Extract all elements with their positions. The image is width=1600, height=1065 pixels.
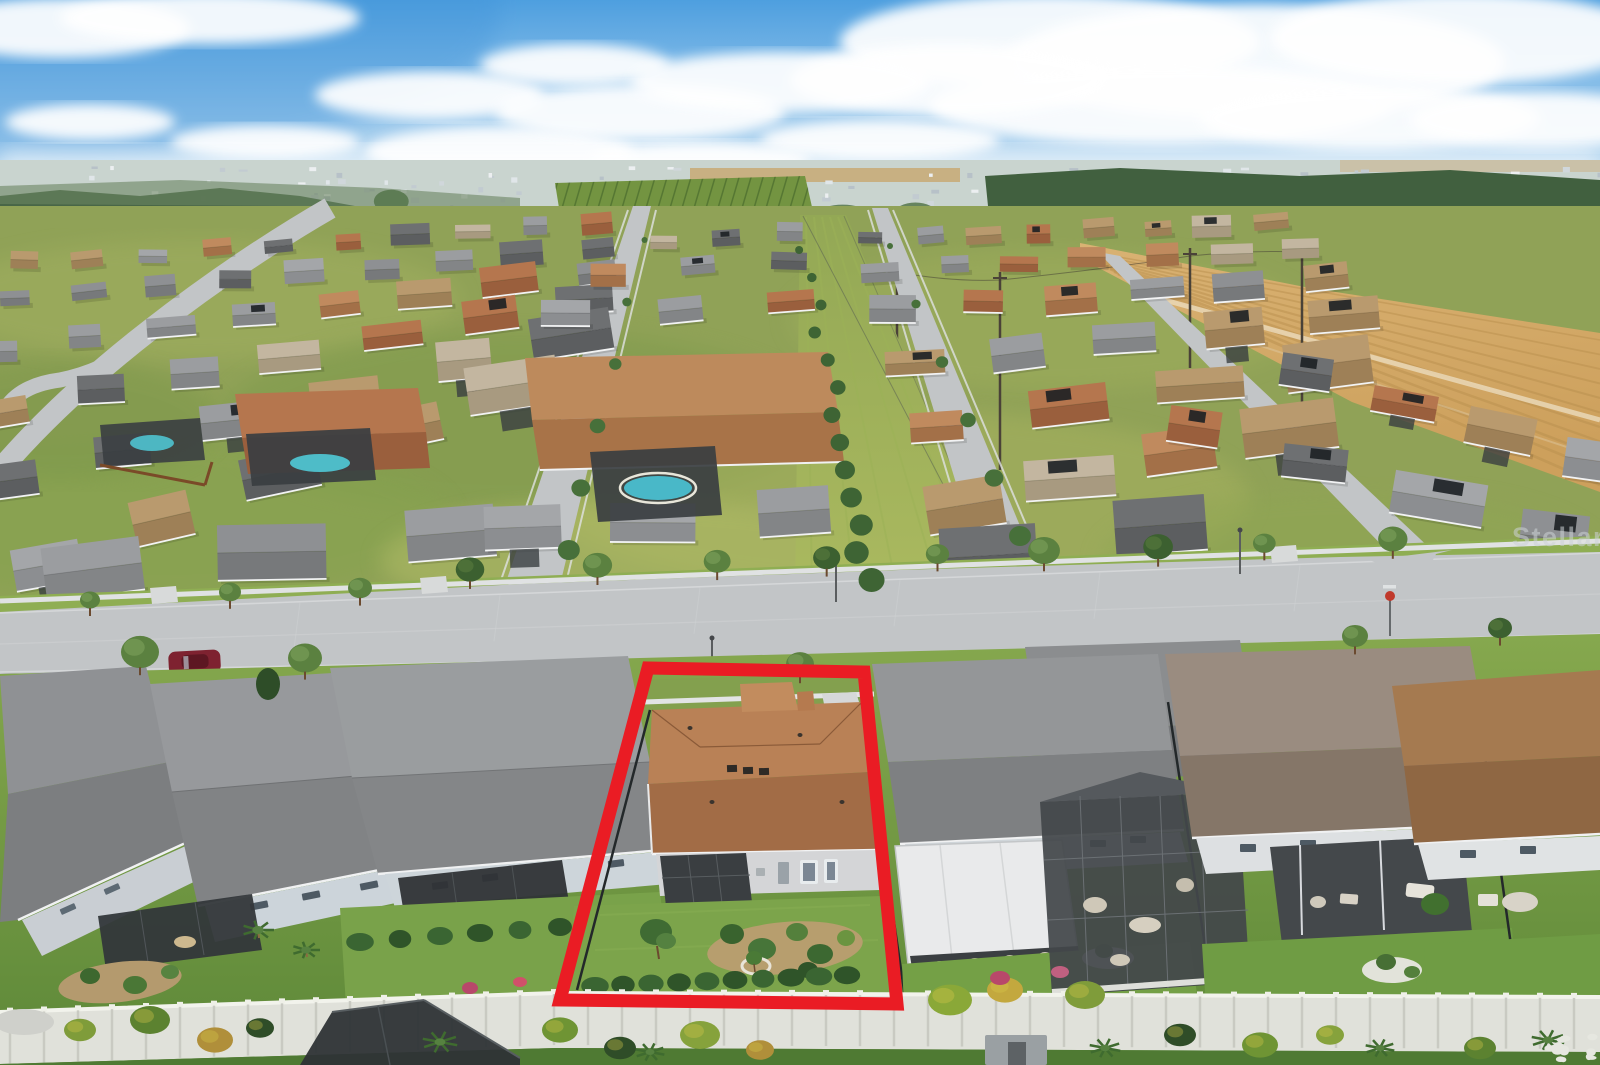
- wall-post-cap: [1469, 993, 1475, 998]
- solar-panel: [720, 231, 729, 236]
- distant-house-speck: [298, 182, 305, 184]
- stop-sign: [1385, 591, 1395, 601]
- wall-post-cap: [687, 990, 693, 995]
- wall-post-cap: [1367, 992, 1373, 997]
- belt-tree: [840, 488, 862, 508]
- hedge: [834, 966, 860, 984]
- blob: [840, 800, 845, 804]
- patio-furniture: [1083, 897, 1107, 913]
- blob: [887, 243, 893, 249]
- blob: [936, 356, 948, 368]
- rect: [0, 351, 17, 362]
- solar-panel: [913, 352, 932, 360]
- street-tree-small: [571, 479, 590, 496]
- screen-enclosure: [510, 549, 540, 568]
- wall-post-cap: [347, 996, 353, 1001]
- blob: [985, 469, 1004, 486]
- distant-house-speck: [239, 170, 248, 172]
- midground-house: [170, 356, 223, 392]
- blob: [249, 1020, 263, 1030]
- wall-post-cap: [1333, 992, 1339, 997]
- rect: [1146, 254, 1179, 267]
- blob: [82, 593, 93, 602]
- midground-house: [580, 211, 616, 239]
- wall-post-cap: [1129, 991, 1135, 996]
- wall-post-cap: [41, 1006, 47, 1011]
- midground-house: [1307, 295, 1383, 337]
- rect: [1211, 253, 1253, 264]
- hedge: [752, 970, 775, 988]
- subject-lanai: [660, 853, 752, 906]
- blob: [798, 733, 803, 737]
- pool: [130, 435, 174, 451]
- hedge: [467, 924, 493, 942]
- white-rock: [1587, 1056, 1596, 1060]
- aerial-photo-canvas: StellarMLS: [0, 0, 1600, 1065]
- street-tree-small: [590, 419, 606, 433]
- midground-house: [0, 290, 33, 309]
- blob: [458, 559, 474, 572]
- blob: [462, 982, 478, 994]
- wall-post-cap: [1027, 991, 1033, 996]
- midground-house: [581, 237, 618, 263]
- midground-house: [757, 485, 835, 541]
- line: [523, 225, 547, 226]
- distant-house-speck: [220, 168, 225, 172]
- rect: [138, 256, 167, 263]
- midground-house: [1192, 215, 1235, 241]
- midground-house: [771, 252, 810, 273]
- blob: [1069, 984, 1089, 998]
- blob: [301, 947, 311, 954]
- distant-house-speck: [913, 194, 920, 199]
- blob: [746, 951, 762, 965]
- midground-house: [965, 226, 1005, 248]
- blob: [252, 926, 263, 934]
- wall-post-cap: [789, 990, 795, 995]
- rect: [771, 260, 807, 270]
- wall-post-cap: [109, 1004, 115, 1009]
- midground-house: [390, 223, 433, 249]
- midground-house: [917, 225, 947, 247]
- distant-house-speck: [825, 180, 832, 184]
- blob: [1176, 878, 1194, 892]
- wall-post-cap: [177, 1002, 183, 1007]
- rect: [1008, 1042, 1026, 1065]
- line: [610, 542, 695, 543]
- rect: [219, 279, 251, 288]
- pool: [290, 454, 350, 472]
- blob: [684, 1024, 704, 1038]
- rect: [1211, 243, 1253, 254]
- wall-post-cap: [313, 997, 319, 1002]
- distant-house-speck: [929, 174, 933, 177]
- hedge: [695, 972, 720, 990]
- rect: [217, 523, 326, 553]
- rect: [364, 259, 399, 270]
- wall-post-cap: [1571, 993, 1577, 998]
- midground-house: [1282, 238, 1323, 262]
- blob: [607, 1039, 623, 1050]
- blob: [221, 584, 233, 594]
- solar-panel: [1230, 310, 1250, 323]
- midground-house: [858, 232, 885, 247]
- rect: [1027, 234, 1051, 244]
- ovoid-shrub: [256, 668, 280, 700]
- sand-circle: [174, 936, 196, 948]
- tan-house-roof: [525, 352, 838, 420]
- subject-door: [778, 862, 789, 884]
- distant-house-speck: [848, 186, 854, 189]
- midground-house: [1253, 211, 1292, 233]
- midground-house: [1166, 405, 1226, 452]
- wall-post-cap: [755, 990, 761, 995]
- belt-tree: [844, 541, 869, 564]
- rect: [483, 504, 561, 529]
- midground-house: [650, 236, 680, 253]
- blob: [932, 988, 954, 1003]
- blob: [1030, 539, 1048, 553]
- blob: [1376, 954, 1396, 970]
- blob: [646, 1049, 655, 1055]
- rect: [390, 234, 430, 246]
- rect: [139, 249, 168, 256]
- blob: [656, 933, 676, 949]
- rect: [390, 223, 430, 235]
- midground-house: [767, 289, 819, 317]
- blob: [80, 968, 100, 984]
- screen-enclosure: [1225, 346, 1249, 364]
- rect: [869, 295, 916, 309]
- midground-house: [1211, 243, 1257, 268]
- belt-tree: [835, 461, 855, 480]
- wall-post-cap: [1299, 992, 1305, 997]
- street-tree-small: [622, 298, 631, 307]
- distant-house-speck: [110, 166, 114, 170]
- blob: [1490, 620, 1503, 631]
- wall-post-cap: [483, 991, 489, 996]
- midground-house: [941, 255, 972, 276]
- blob: [688, 726, 693, 730]
- midground-house: [680, 254, 719, 278]
- distant-house-speck: [411, 185, 416, 188]
- midground-house: [138, 249, 170, 266]
- rect: [1282, 248, 1319, 259]
- midground-house: [1023, 455, 1119, 505]
- distant-house-speck: [89, 176, 94, 181]
- rect: [964, 290, 1004, 302]
- blob: [134, 1009, 154, 1023]
- rect: [803, 863, 815, 881]
- pool: [624, 476, 692, 500]
- blob: [124, 639, 145, 656]
- wall-post-cap: [1197, 991, 1203, 996]
- midground-house: [1146, 242, 1182, 270]
- wall-post-cap: [245, 1000, 251, 1005]
- line: [963, 312, 1002, 313]
- house-d-roof: [872, 654, 1172, 762]
- white-rock: [1586, 1048, 1596, 1056]
- distant-house-speck: [1563, 167, 1570, 172]
- solar-panel: [1061, 286, 1078, 296]
- rect: [365, 269, 400, 280]
- garden-shrub: [786, 923, 808, 941]
- hedge: [389, 930, 412, 948]
- distant-house-speck: [931, 190, 939, 194]
- midground-house: [1281, 443, 1352, 486]
- hedge: [778, 969, 805, 987]
- wall-post-cap: [653, 989, 659, 994]
- blob: [1543, 1037, 1553, 1044]
- blob: [1310, 896, 1326, 908]
- distant-house-speck: [385, 180, 388, 185]
- street-tree-small: [642, 237, 648, 243]
- midground-house: [591, 264, 629, 290]
- blob: [1246, 1035, 1264, 1048]
- distant-house-speck: [92, 166, 98, 168]
- driveway: [420, 576, 448, 594]
- roof-vent: [759, 768, 769, 775]
- blob: [706, 552, 721, 564]
- blob: [815, 548, 830, 560]
- blob: [1404, 966, 1420, 978]
- blob: [513, 977, 527, 987]
- midground-house: [364, 259, 403, 283]
- belt-tree: [808, 327, 821, 339]
- street-name-sign: [1383, 585, 1396, 589]
- distant-house-speck: [326, 180, 330, 184]
- belt-tree: [831, 434, 850, 451]
- midground-house: [77, 374, 128, 408]
- wall-post-cap: [75, 1005, 81, 1010]
- garden-shrub: [720, 924, 744, 944]
- patio-furniture: [1502, 892, 1538, 912]
- wall-post-cap: [721, 990, 727, 995]
- belt-tree: [830, 380, 846, 395]
- aerial-photo: StellarMLS: [0, 0, 1600, 1065]
- yard-tree: [1421, 893, 1449, 915]
- house-g-roof: [1392, 670, 1600, 766]
- blob: [710, 636, 715, 641]
- subject-roof-front: [648, 702, 870, 784]
- midground-house: [869, 295, 919, 326]
- wall-post-cap: [1503, 993, 1509, 998]
- midground-house: [1155, 365, 1248, 406]
- distant-house-speck: [967, 173, 972, 178]
- rect: [523, 216, 547, 226]
- distant-tan-hill: [1340, 160, 1600, 172]
- rect: [1192, 226, 1232, 238]
- street-tree-small: [558, 540, 580, 560]
- midground-house: [396, 277, 456, 312]
- line: [610, 522, 695, 523]
- midground-house: [860, 262, 902, 286]
- midground-house: [712, 229, 744, 250]
- house-c-roof: [330, 656, 650, 778]
- midground-house: [461, 294, 523, 338]
- blob: [1467, 1039, 1483, 1050]
- midground-house: [219, 270, 254, 291]
- belt-tree: [821, 353, 835, 366]
- distant-house-speck: [1361, 170, 1369, 174]
- rect: [610, 522, 695, 542]
- rect: [10, 259, 38, 269]
- line: [754, 964, 755, 972]
- hedge: [806, 967, 832, 985]
- solar-panel: [1152, 223, 1161, 228]
- subject-front-gable: [740, 682, 798, 712]
- rect: [827, 862, 835, 880]
- blob: [1129, 917, 1161, 933]
- rect: [523, 225, 547, 235]
- solar-panel: [1319, 265, 1334, 274]
- rect: [777, 231, 803, 241]
- midground-house: [202, 237, 235, 260]
- cloud: [5, 104, 175, 140]
- distant-house-speck: [825, 193, 828, 197]
- solar-panel: [251, 305, 265, 313]
- wall-post-cap: [1265, 992, 1271, 997]
- midground-house: [1044, 282, 1101, 319]
- distant-house-speck: [478, 187, 483, 192]
- blob: [291, 646, 310, 661]
- garden-shrub: [807, 944, 833, 964]
- rect: [1340, 893, 1359, 904]
- belt-tree: [823, 407, 840, 423]
- wall-post-cap: [857, 990, 863, 995]
- rect: [650, 236, 677, 243]
- wall-post-cap: [279, 998, 285, 1003]
- wall-post-cap: [415, 994, 421, 999]
- wall-post-cap: [1435, 992, 1441, 997]
- distant-house-speck: [1355, 170, 1359, 173]
- blob: [1100, 1045, 1110, 1051]
- rect: [650, 242, 677, 249]
- wall-post-cap: [517, 990, 523, 995]
- rect: [1068, 257, 1106, 267]
- wall-post-cap: [585, 989, 591, 994]
- line: [1000, 264, 1038, 265]
- midground-house: [435, 249, 476, 274]
- rect: [591, 264, 626, 276]
- midground-house: [657, 295, 706, 328]
- hedge: [638, 975, 663, 993]
- midground-house: [909, 410, 967, 447]
- blob: [1380, 529, 1396, 542]
- rect: [1520, 846, 1536, 854]
- subject-roof-rear: [648, 772, 878, 854]
- midground-house: [1130, 276, 1188, 303]
- midground-house: [1000, 256, 1041, 275]
- solar-panel: [1204, 217, 1217, 224]
- shape: [797, 691, 815, 711]
- belt-tree: [859, 568, 885, 592]
- distant-house-speck: [489, 173, 492, 178]
- blob: [1255, 535, 1267, 545]
- distant-house-speck: [667, 167, 673, 170]
- blob: [1167, 1026, 1183, 1037]
- blob: [1344, 627, 1358, 639]
- midground-house: [257, 339, 325, 377]
- belt-tree: [795, 246, 803, 254]
- midground-house: [283, 258, 327, 287]
- hedge: [667, 973, 691, 991]
- rect: [541, 313, 590, 326]
- rect: [1240, 844, 1256, 852]
- midground-house: [541, 300, 593, 329]
- midground-house: [232, 302, 280, 330]
- midground-house: [1144, 220, 1175, 240]
- rect: [591, 275, 626, 287]
- wall-post-cap: [211, 1001, 217, 1006]
- blob: [1376, 1045, 1385, 1051]
- rect: [1460, 850, 1476, 858]
- midground-house: [1212, 270, 1269, 306]
- midground-house: [963, 290, 1006, 316]
- distant-house-speck: [673, 168, 681, 171]
- solar-panel: [1048, 459, 1078, 473]
- hedge: [346, 933, 374, 951]
- distant-house-speck: [439, 181, 444, 185]
- blob: [928, 546, 941, 556]
- rect: [484, 526, 562, 551]
- rect: [1282, 238, 1319, 249]
- blob: [201, 1030, 219, 1043]
- midground-house: [217, 523, 330, 583]
- midground-house: [1092, 321, 1160, 358]
- solar-panel: [692, 258, 703, 264]
- midground-house: [70, 249, 107, 272]
- roof-vent: [727, 765, 737, 772]
- midground-house: [318, 290, 364, 322]
- rect: [858, 238, 882, 244]
- blob: [585, 555, 601, 568]
- distant-house-speck: [971, 190, 978, 193]
- rect: [68, 324, 100, 337]
- white-rock: [1587, 1034, 1597, 1040]
- white-rock: [1544, 1045, 1555, 1051]
- hedge: [548, 918, 572, 936]
- watermark-text: StellarMLS: [1512, 522, 1600, 552]
- belt-tree: [807, 273, 817, 282]
- hedge: [509, 921, 532, 939]
- rect: [541, 300, 590, 313]
- blob: [911, 300, 920, 309]
- white-rock: [1557, 1037, 1567, 1043]
- wall-post-cap: [381, 995, 387, 1000]
- driveway: [150, 586, 178, 604]
- midground-house: [1082, 217, 1118, 242]
- distant-house-speck: [1241, 168, 1249, 171]
- distant-house-speck: [600, 177, 604, 180]
- wall-post-cap: [1537, 993, 1543, 998]
- rect: [217, 551, 326, 581]
- blob: [1238, 528, 1243, 533]
- distant-house-speck: [629, 166, 635, 170]
- blob: [350, 580, 363, 591]
- solar-panel: [1032, 226, 1040, 232]
- blob: [546, 1020, 564, 1033]
- hedge: [723, 971, 748, 989]
- wall-post-cap: [619, 989, 625, 994]
- midground-house: [264, 238, 297, 257]
- wall-post-cap: [1231, 992, 1237, 997]
- midground-house: [68, 324, 104, 352]
- blob: [161, 965, 179, 979]
- rect: [1478, 894, 1498, 906]
- rect: [771, 252, 807, 262]
- blob: [67, 1021, 83, 1032]
